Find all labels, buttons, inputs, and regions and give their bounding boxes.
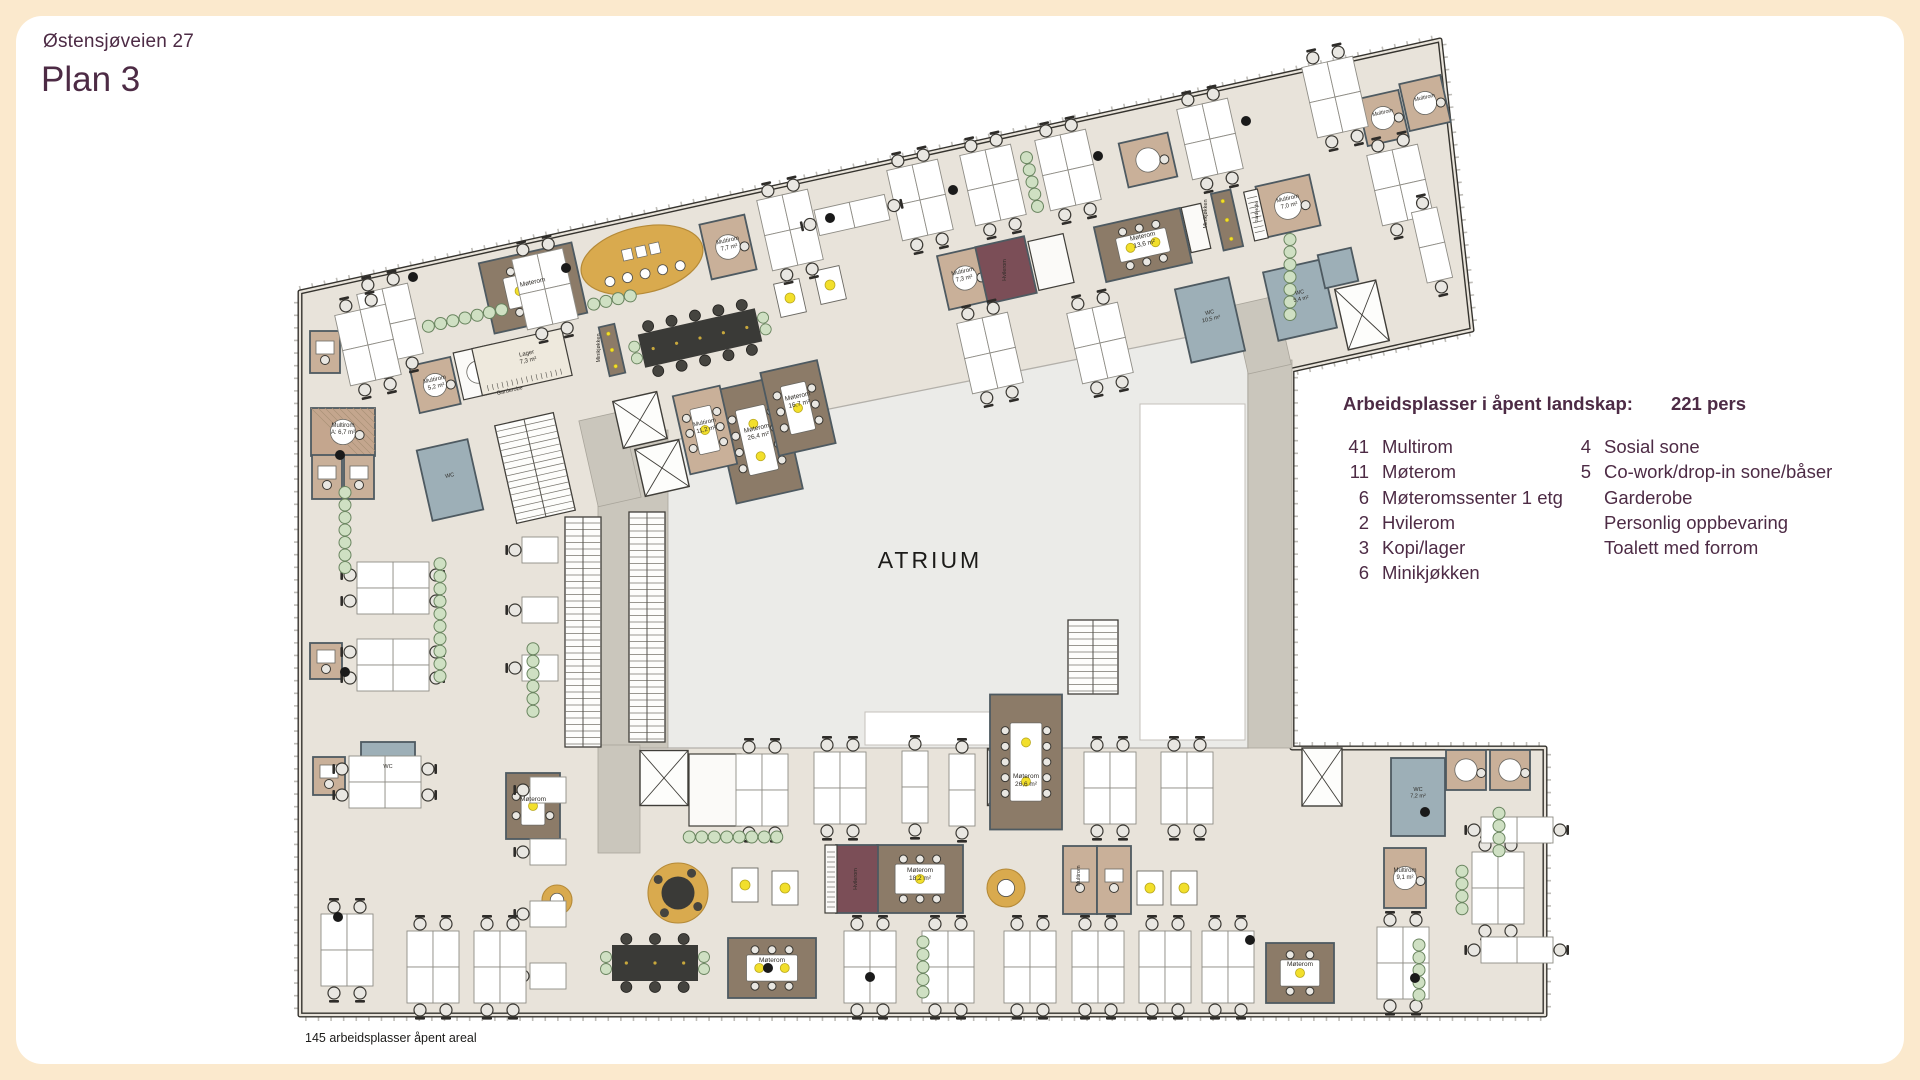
legend-person-count: 221 pers: [1671, 393, 1746, 414]
legend-item: 5Co-work/drop-in sone/båser: [1573, 459, 1903, 484]
legend-item: 6Møteromssenter 1 etg: [1343, 485, 1573, 510]
plan-label: Hvilerom: [1002, 259, 1008, 281]
legend-item: 6Minikjøkken: [1343, 560, 1573, 585]
legend-item: Garderobe: [1573, 485, 1903, 510]
building-address: Østensjøveien 27: [43, 31, 194, 53]
plan-label: Møterom: [759, 957, 785, 964]
plan-label: Garderobe: [1254, 201, 1259, 223]
plan-label: Hvilerom: [853, 868, 859, 890]
workspace-count-note: 145 arbeidsplasser åpent areal: [305, 1031, 477, 1045]
legend: Arbeidsplasser i åpent landskap:221 pers…: [1343, 393, 1903, 586]
legend-title: Arbeidsplasser i åpent landskap:: [1343, 393, 1633, 414]
legend-item: 3Kopi/lager: [1343, 535, 1573, 560]
plan-label: ATRIUM: [878, 547, 982, 573]
plan-label: MultiromA: 6,7 m²: [331, 423, 355, 436]
legend-item: 41Multirom: [1343, 434, 1573, 459]
plan-label: Møterom: [1287, 961, 1313, 968]
plan-label: Minikjøkken: [596, 333, 602, 362]
legend-item: 11Møterom: [1343, 459, 1573, 484]
plan-label: Multirom9,1 m²: [1393, 868, 1416, 881]
legend-item: Personlig oppbevaring: [1573, 510, 1903, 535]
legend-column-1: 41Multirom11Møterom6Møteromssenter 1 etg…: [1343, 434, 1573, 586]
plan-label: Møterom26,6 m²: [1013, 773, 1039, 788]
plan-label: WC: [383, 764, 392, 770]
legend-columns: 41Multirom11Møterom6Møteromssenter 1 etg…: [1343, 434, 1903, 586]
legend-header: Arbeidsplasser i åpent landskap:221 pers: [1343, 393, 1903, 415]
legend-item: Toalett med forrom: [1573, 535, 1903, 560]
plan-label: Møterom18,2 m²: [907, 867, 933, 882]
legend-column-2: 4Sosial sone5Co-work/drop-in sone/båserG…: [1573, 434, 1903, 586]
plan-label: Minikjøkken: [1203, 199, 1209, 228]
legend-item: 2Hvilerom: [1343, 510, 1573, 535]
plan-label: Møterom: [520, 796, 546, 803]
plan-label: Multirom: [1076, 865, 1082, 887]
page-title: Plan 3: [41, 60, 140, 100]
legend-item: 4Sosial sone: [1573, 434, 1903, 459]
